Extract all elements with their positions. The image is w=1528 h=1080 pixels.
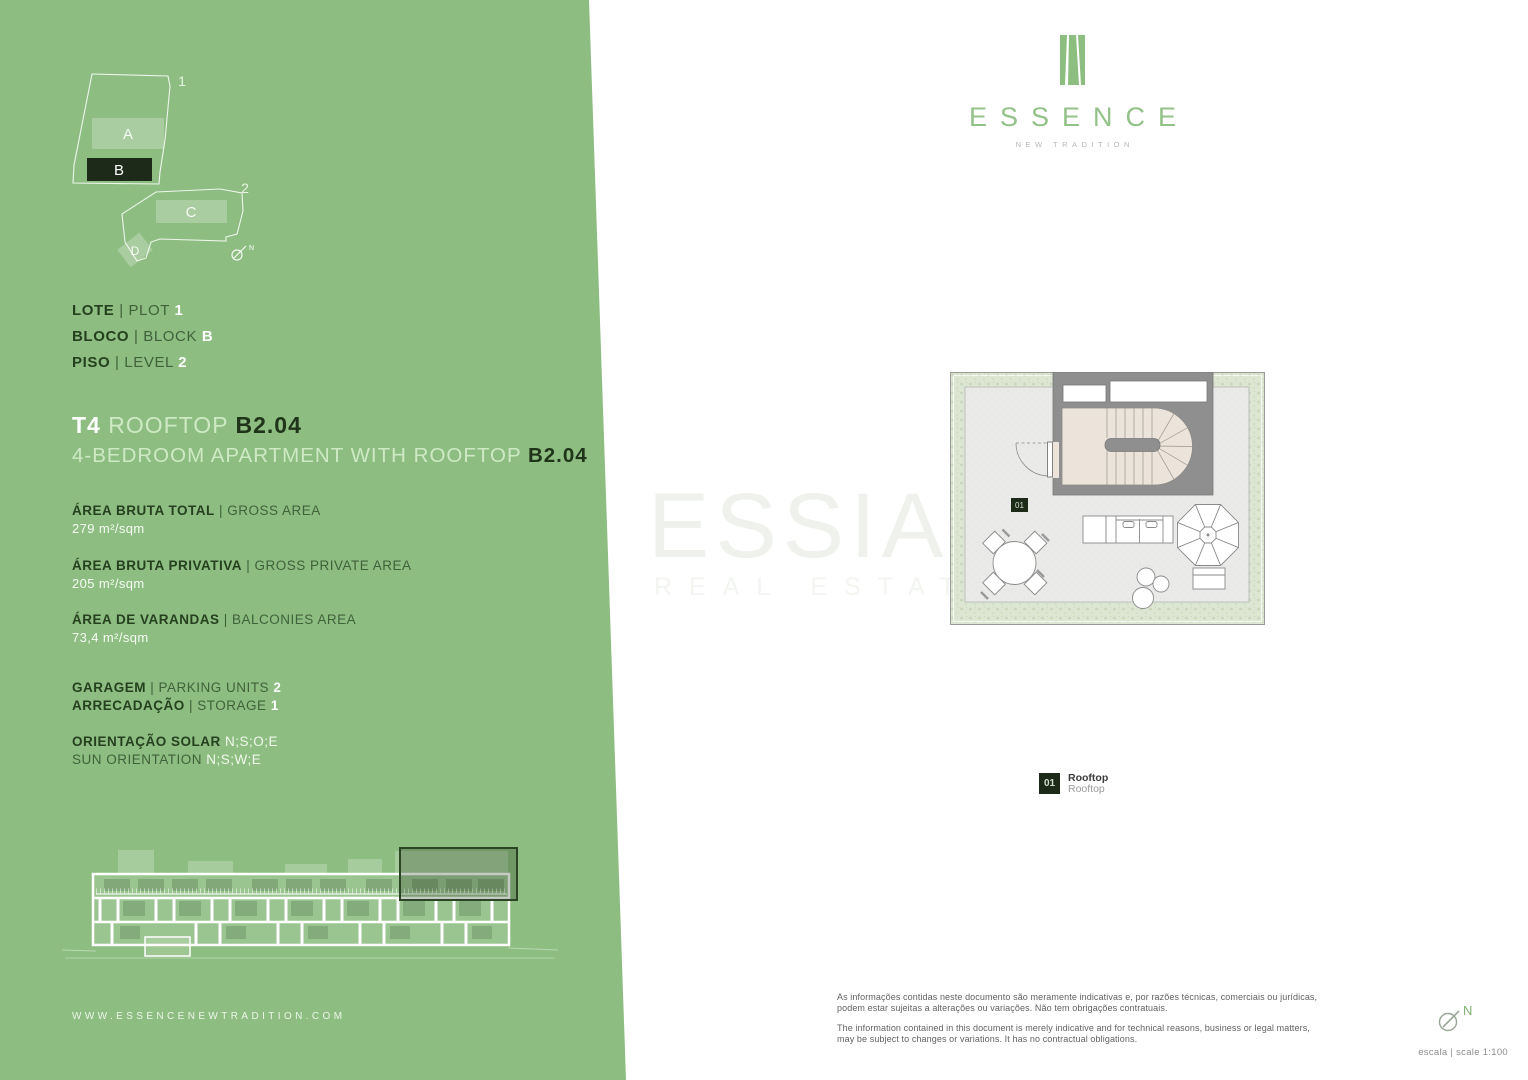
floor-plan: 01 [950,372,1265,625]
entrance-volume [145,937,190,956]
orientation-en-label: SUN ORIENTATION [72,752,202,767]
garage-en: | PARKING UNITS [150,680,269,695]
disclaimer: As informações contidas neste documento … [837,992,1324,1054]
plan-north-label: N [1463,1003,1472,1018]
brand-logo: ESSENCE NEW TRADITION [940,35,1205,149]
piso-value: 2 [178,354,187,371]
sun-lounger [1193,568,1225,589]
private-area-pt: ÁREA BRUTA PRIVATIVA [72,558,242,573]
orientation-en-value: N;S;W;E [206,752,261,767]
storage-row: ARRECADAÇÃO | STORAGE 1 [72,697,281,715]
garage-value: 2 [273,680,281,695]
block-b-label: B [114,162,124,179]
piso-label-pt: PISO [72,354,110,371]
private-area-value: 205 m²/sqm [72,576,412,591]
brand-tagline: NEW TRADITION [940,140,1205,149]
storage-pt: ARRECADAÇÃO [72,698,185,713]
orientation-pt-value: N;S;O;E [225,734,278,749]
private-area-label: ÁREA BRUTA PRIVATIVA | GROSS PRIVATE ARE… [72,558,412,573]
building-elevation [60,838,560,973]
brand-logo-text: ESSENCE [940,102,1205,133]
bloco-value: B [202,328,213,345]
parasol-umbrella [1178,505,1239,566]
disclaimer-pt: As informações contidas neste documento … [837,992,1324,1014]
disclaimer-en: The information contained in this docume… [837,1023,1324,1045]
block-c-label: C [186,204,197,221]
balconies-area-en: | BALCONIES AREA [224,612,356,627]
legend-number-badge: 01 [1039,773,1060,794]
orientation-pt-label: ORIENTAÇÃO SOLAR [72,734,221,749]
orientation-pt-row: ORIENTAÇÃO SOLAR N;S;O;E [72,733,278,751]
private-area-group: ÁREA BRUTA PRIVATIVA | GROSS PRIVATE ARE… [72,558,412,591]
unit-subtitle-text: 4-BEDROOM APARTMENT WITH ROOFTOP [72,444,521,467]
unit-code: B2.04 [236,412,302,438]
garage-row: GARAGEM | PARKING UNITS 2 [72,679,281,697]
bloco-row: BLOCO | BLOCK B [72,324,213,350]
scale-note: escala | scale 1:100 [1418,1047,1508,1058]
unit-info: LOTE | PLOT 1 BLOCO | BLOCK B PISO | LEV… [72,298,213,376]
lote-label-en: | PLOT [119,302,170,319]
lote-label-pt: LOTE [72,302,114,319]
block-d-label: D [131,244,140,258]
gross-area-pt: ÁREA BRUTA TOTAL [72,503,215,518]
lote-row: LOTE | PLOT 1 [72,298,213,324]
facilities: GARAGEM | PARKING UNITS 2 ARRECADAÇÃO | … [72,679,281,715]
block-a-label: A [123,126,133,143]
gross-area-value: 279 m²/sqm [72,521,321,536]
gross-area-en: | GROSS AREA [219,503,321,518]
highlighted-unit-box [400,848,517,900]
balconies-area-value: 73,4 m²/sqm [72,630,356,645]
unit-title: T4 ROOFTOP B2.04 [72,412,302,439]
room-badge: 01 [1011,498,1028,512]
garage-pt: GARAGEM [72,680,146,695]
sofa-set [1083,516,1173,543]
site-plan-north-icon [232,246,246,260]
bloco-label-en: | BLOCK [134,328,197,345]
website-url[interactable]: WWW.ESSENCENEWTRADITION.COM [72,1011,345,1022]
gross-area-group: ÁREA BRUTA TOTAL | GROSS AREA 279 m²/sqm [72,503,321,536]
legend-room-name-en: Rooftop [1068,784,1108,795]
brand-logo-icon [1060,35,1086,85]
piso-label-en: | LEVEL [115,354,173,371]
storage-value: 1 [271,698,279,713]
unit-subtitle-code: B2.04 [528,444,588,467]
unit-name: ROOFTOP [108,412,228,438]
unit-subtitle: 4-BEDROOM APARTMENT WITH ROOFTOP B2.04 [72,444,588,468]
plan-north-icon: N [1432,1000,1482,1036]
site-plan: A B C D 1 2 N [60,60,310,280]
brochure-page: A B C D 1 2 N LOTE | PLOT 1 BLOCO | BL [0,0,1528,1080]
lote-value: 1 [175,302,184,319]
storage-en: | STORAGE [189,698,267,713]
balconies-area-pt: ÁREA DE VARANDAS [72,612,220,627]
piso-row: PISO | LEVEL 2 [72,350,213,376]
unit-type: T4 [72,412,101,438]
left-green-panel: A B C D 1 2 N LOTE | PLOT 1 BLOCO | BL [0,0,660,1080]
orientation: ORIENTAÇÃO SOLAR N;S;O;E SUN ORIENTATION… [72,733,278,769]
floor-plan-legend: 01 Rooftop Rooftop [1039,773,1108,795]
private-area-en: | GROSS PRIVATE AREA [246,558,411,573]
door-leaf [1048,442,1053,477]
orientation-en-row: SUN ORIENTATION N;S;W;E [72,751,278,769]
balconies-area-group: ÁREA DE VARANDAS | BALCONIES AREA 73,4 m… [72,612,356,645]
balconies-area-label: ÁREA DE VARANDAS | BALCONIES AREA [72,612,356,627]
room-badge-number: 01 [1015,501,1024,510]
gross-area-label: ÁREA BRUTA TOTAL | GROSS AREA [72,503,321,518]
site-plan-north-label: N [249,245,254,252]
bloco-label-pt: BLOCO [72,328,129,345]
plot-1-number: 1 [178,73,186,89]
plot-2-number: 2 [241,180,249,196]
